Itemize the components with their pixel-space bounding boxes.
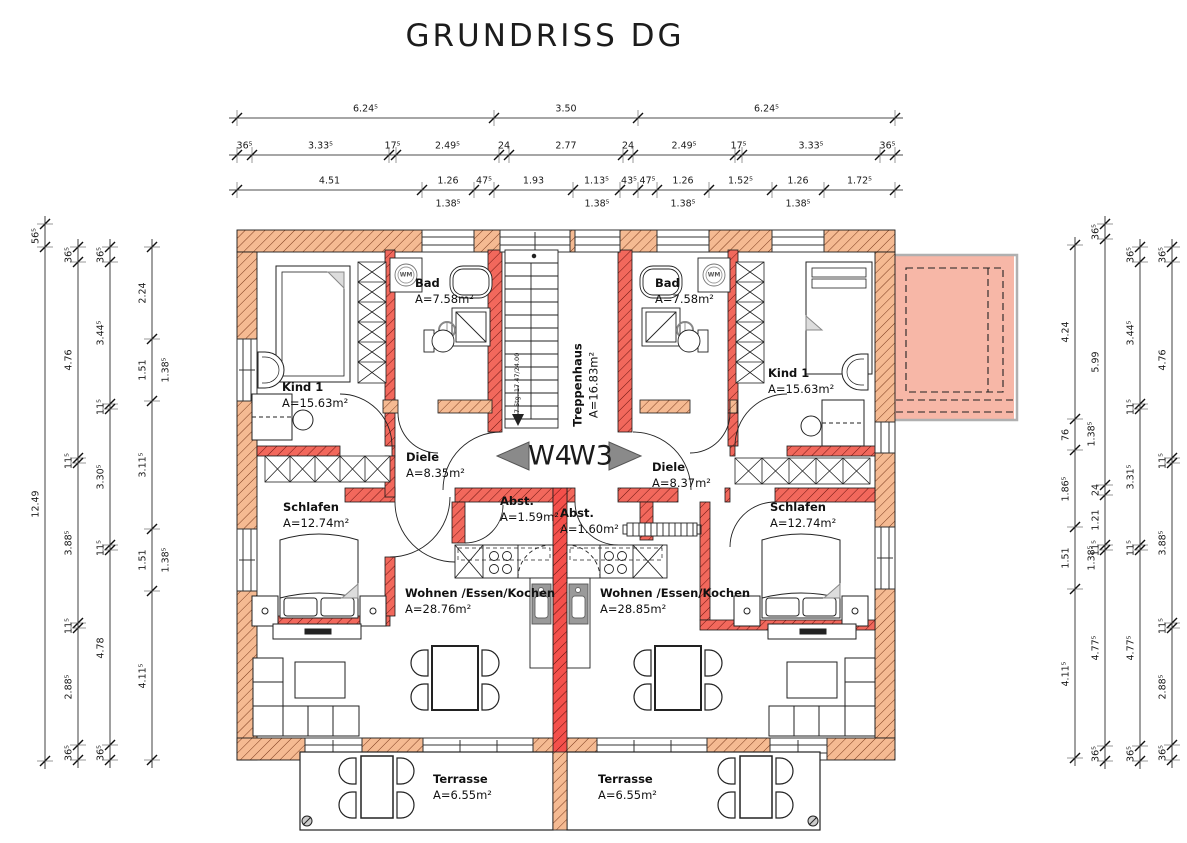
dim-label: 56⁵ <box>31 228 42 244</box>
dim-label: 1.86⁵ <box>1061 476 1072 501</box>
dim-label: 2.49⁵ <box>435 141 460 152</box>
dim-label: 2.24 <box>138 282 149 303</box>
dim-label: 1.38⁵ <box>1087 546 1098 571</box>
dim-label: 36⁵ <box>1091 224 1102 240</box>
dim-label: 5.99 <box>1091 351 1102 372</box>
dim-label: 36⁵ <box>1126 247 1137 263</box>
dim-label: 2.77 <box>555 141 576 152</box>
dim-label: 36⁵ <box>880 141 896 152</box>
dim-label: 1.38⁵ <box>436 199 461 210</box>
dim-label: 3.33⁵ <box>799 141 824 152</box>
dim-label: 1.51 <box>138 359 149 380</box>
dim-label: 3.44⁵ <box>1126 321 1137 346</box>
apartment-label-w3: W3 <box>569 441 613 472</box>
room-label-kind1-left: Kind 1A=15.63m² <box>282 380 348 411</box>
dim-label: 4.77⁵ <box>1126 636 1137 661</box>
dim-label: 36⁵ <box>1158 745 1169 761</box>
dim-label: 3.30⁵ <box>96 465 107 490</box>
dim-label: 6.24⁵ <box>353 104 378 115</box>
dim-label: 24 <box>1091 484 1102 496</box>
dim-label: 3.88⁵ <box>64 531 75 556</box>
labels-layer: GRUNDRISS DG Kind 1A=15.63m² BadA=7.58m²… <box>0 0 1187 843</box>
dim-label: 3.33⁵ <box>308 141 333 152</box>
dim-label: 1.93 <box>523 176 544 187</box>
dim-label: 76 <box>1061 428 1072 440</box>
room-label-bad-left: BadA=7.58m² <box>415 276 474 307</box>
floorplan-sheet: GRUNDRISS DG Kind 1A=15.63m² BadA=7.58m²… <box>0 0 1187 843</box>
dim-label: 4.76 <box>1158 349 1169 370</box>
dim-label: 17⁵ <box>731 141 747 152</box>
dim-label: 3.50 <box>555 104 576 115</box>
room-label-diele-right: DieleA=8.37m² <box>652 460 711 491</box>
stair-note: 17 Stg. 17.47/24.00 <box>513 353 521 418</box>
dim-label: 11⁵ <box>1158 453 1169 469</box>
dim-label: 11⁵ <box>64 453 75 469</box>
dim-label: 1.38⁵ <box>585 199 610 210</box>
room-label-wohnen-right: Wohnen /Essen/KochenA=28.85m² <box>600 586 750 617</box>
dim-label: 4.77⁵ <box>1091 636 1102 661</box>
dim-label: 4.11⁵ <box>1061 661 1072 686</box>
room-label-terrasse-right: TerrasseA=6.55m² <box>598 772 657 803</box>
dim-label: 4.78 <box>96 637 107 658</box>
dim-label: 47⁵ <box>640 176 656 187</box>
dim-label: 36⁵ <box>237 141 253 152</box>
dim-label: 43⁵ <box>621 176 637 187</box>
dim-label: 36⁵ <box>1158 247 1169 263</box>
dim-label: 12.49 <box>31 490 42 517</box>
dim-label: 4.24 <box>1061 321 1072 342</box>
dim-label: 1.26 <box>787 176 808 187</box>
room-label-terrasse-left: TerrasseA=6.55m² <box>433 772 492 803</box>
dim-label: 1.52⁵ <box>728 176 753 187</box>
dim-label: 24 <box>622 141 634 152</box>
dim-label: 11⁵ <box>96 399 107 415</box>
dim-label: 24 <box>498 141 510 152</box>
dim-label: 1.51 <box>138 549 149 570</box>
room-label-kind1-right: Kind 1A=15.63m² <box>768 366 834 397</box>
dim-label: 11⁵ <box>64 618 75 634</box>
dim-label: 1.38⁵ <box>671 199 696 210</box>
room-label-schlafen-right: SchlafenA=12.74m² <box>770 500 836 531</box>
room-label-schlafen-left: SchlafenA=12.74m² <box>283 500 349 531</box>
wm-label-right: WM <box>708 272 721 279</box>
dim-label: 36⁵ <box>96 745 107 761</box>
dim-label: 3.11⁵ <box>138 453 149 478</box>
page-title: GRUNDRISS DG <box>405 18 684 54</box>
dim-label: 3.44⁵ <box>96 321 107 346</box>
dim-label: 2.88⁵ <box>1158 674 1169 699</box>
dim-label: 11⁵ <box>96 540 107 556</box>
dim-label: 6.24⁵ <box>754 104 779 115</box>
dim-label: 2.88⁵ <box>64 674 75 699</box>
dim-label: 2.49⁵ <box>672 141 697 152</box>
apartment-label-w4: W4 <box>528 441 572 472</box>
dim-label: 36⁵ <box>1091 746 1102 762</box>
room-label-bad-right: BadA=7.58m² <box>655 276 714 307</box>
dim-label: 4.51 <box>319 176 340 187</box>
dim-label: 36⁵ <box>96 247 107 263</box>
dim-label: 3.88⁵ <box>1158 531 1169 556</box>
room-label-wohnen-left: Wohnen /Essen/KochenA=28.76m² <box>405 586 555 617</box>
dim-label: 36⁵ <box>64 745 75 761</box>
room-label-treppenhaus: TreppenhausA=16.83m² <box>570 343 601 426</box>
room-label-abst-right: Abst.A=1.60m² <box>560 506 619 537</box>
dim-label: 36⁵ <box>64 247 75 263</box>
dim-label: 4.76 <box>64 349 75 370</box>
dim-label: 1.38⁵ <box>161 358 172 383</box>
dim-label: 11⁵ <box>1126 540 1137 556</box>
dim-label: 3.31⁵ <box>1126 465 1137 490</box>
room-label-abst-left: Abst.A=1.59m² <box>500 494 559 525</box>
dim-label: 1.51 <box>1061 547 1072 568</box>
dim-label: 47⁵ <box>476 176 492 187</box>
dim-label: 1.21 <box>1091 509 1102 530</box>
dim-label: 1.38⁵ <box>786 199 811 210</box>
dim-label: 1.26 <box>437 176 458 187</box>
dim-label: 11⁵ <box>1126 399 1137 415</box>
dim-label: 36⁵ <box>1126 746 1137 762</box>
dim-label: 1.72⁵ <box>847 176 872 187</box>
dim-label: 17⁵ <box>385 141 401 152</box>
dim-label: 1.38⁵ <box>161 548 172 573</box>
dim-label: 1.26 <box>672 176 693 187</box>
dim-label: 11⁵ <box>1158 618 1169 634</box>
room-label-diele-left: DieleA=8.35m² <box>406 450 465 481</box>
wm-label-left: WM <box>400 272 413 279</box>
dim-label: 1.38⁵ <box>1087 422 1098 447</box>
dim-label: 1.13⁵ <box>584 176 609 187</box>
dim-label: 4.11⁵ <box>138 663 149 688</box>
